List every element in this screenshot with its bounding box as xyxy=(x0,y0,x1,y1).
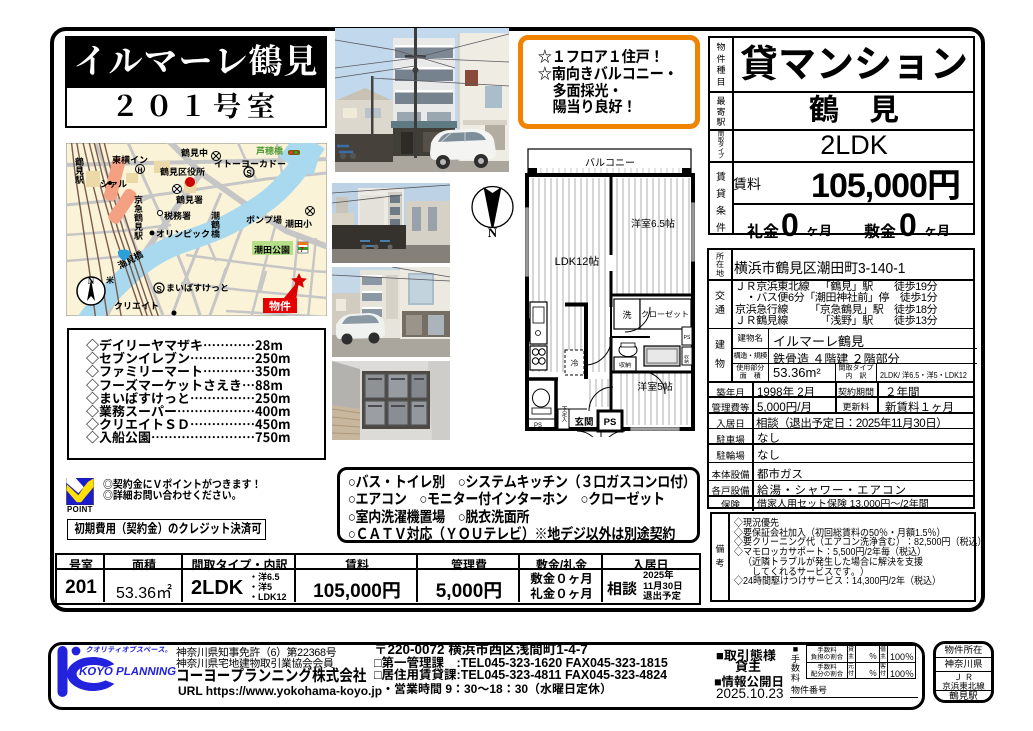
svg-text:鶴見署: 鶴見署 xyxy=(176,195,203,205)
svg-text:PS: PS xyxy=(604,417,617,428)
svg-text:下足入: 下足入 xyxy=(561,406,568,423)
svg-text:N: N xyxy=(488,225,498,240)
svg-text:クリエイト: クリエイト xyxy=(114,301,159,311)
svg-text:洗: 洗 xyxy=(622,310,631,320)
svg-text:冷: 冷 xyxy=(571,359,579,368)
svg-text:玄関: 玄関 xyxy=(574,416,593,428)
svg-text:バルコニー: バルコニー xyxy=(585,157,635,169)
svg-text:芦穂橋: 芦穂橋 xyxy=(256,146,283,156)
svg-text:洋室6.5帖: 洋室6.5帖 xyxy=(631,218,675,230)
svg-text:PS: PS xyxy=(534,423,542,429)
svg-text:収納: 収納 xyxy=(684,354,690,364)
svg-text:米: 米 xyxy=(106,276,114,285)
svg-text:潮田公園: 潮田公園 xyxy=(254,245,290,255)
svg-text:京急鶴見駅: 京急鶴見駅 xyxy=(133,195,143,240)
svg-text:S: S xyxy=(246,169,252,178)
svg-text:潮鶴橋: 潮鶴橋 xyxy=(210,211,220,238)
svg-text:PS: PS xyxy=(684,335,691,341)
svg-text:まいばすけっと: まいばすけっと xyxy=(166,283,229,293)
svg-text:S: S xyxy=(156,285,162,294)
svg-text:シァル: シァル xyxy=(100,179,127,189)
svg-text:LDK12帖: LDK12帖 xyxy=(555,255,600,268)
svg-text:東横イン: 東横イン xyxy=(112,155,148,165)
svg-text:鶴見中: 鶴見中 xyxy=(181,148,208,158)
svg-text:鶴見駅: 鶴見駅 xyxy=(74,157,84,184)
svg-text:税務署: 税務署 xyxy=(164,211,191,221)
svg-text:洋室5帖: 洋室5帖 xyxy=(637,381,673,393)
svg-text:物件: 物件 xyxy=(269,300,291,313)
svg-text:ポンプ場: ポンプ場 xyxy=(246,215,282,225)
svg-text:オリンピック: オリンピック xyxy=(156,229,210,239)
svg-text:鶴見区役所: 鶴見区役所 xyxy=(160,167,205,177)
svg-text:H: H xyxy=(137,168,142,175)
svg-text:収納: 収納 xyxy=(619,361,631,369)
svg-text:7: 7 xyxy=(300,247,304,254)
svg-text:潮田小: 潮田小 xyxy=(285,219,312,229)
